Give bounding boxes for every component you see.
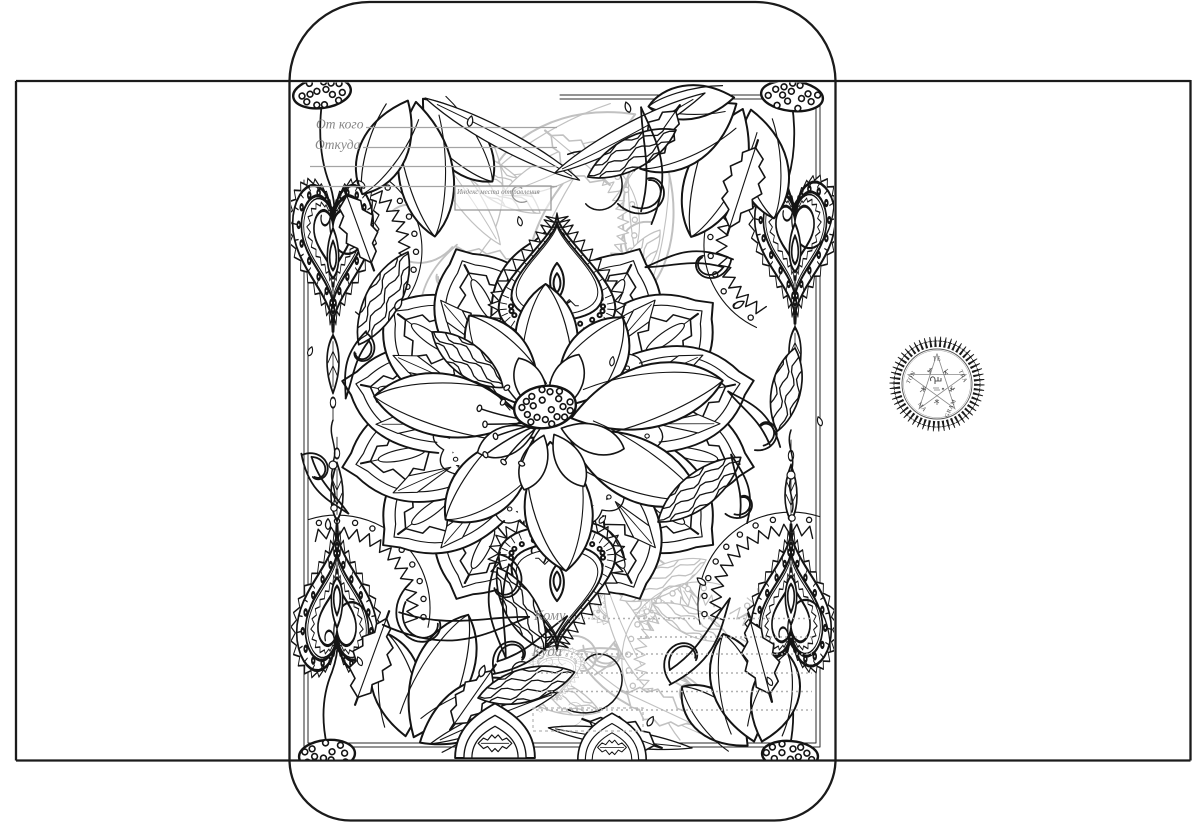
svg-text:Куда: Куда bbox=[531, 644, 562, 660]
svg-text:Откуда: Откуда bbox=[315, 137, 361, 152]
svg-text:TE: TE bbox=[933, 357, 941, 363]
svg-text:Индекс места отправления: Индекс места отправления bbox=[456, 188, 540, 196]
svg-text:Кому: Кому bbox=[533, 608, 566, 624]
svg-text:От кого: От кого bbox=[316, 117, 364, 132]
